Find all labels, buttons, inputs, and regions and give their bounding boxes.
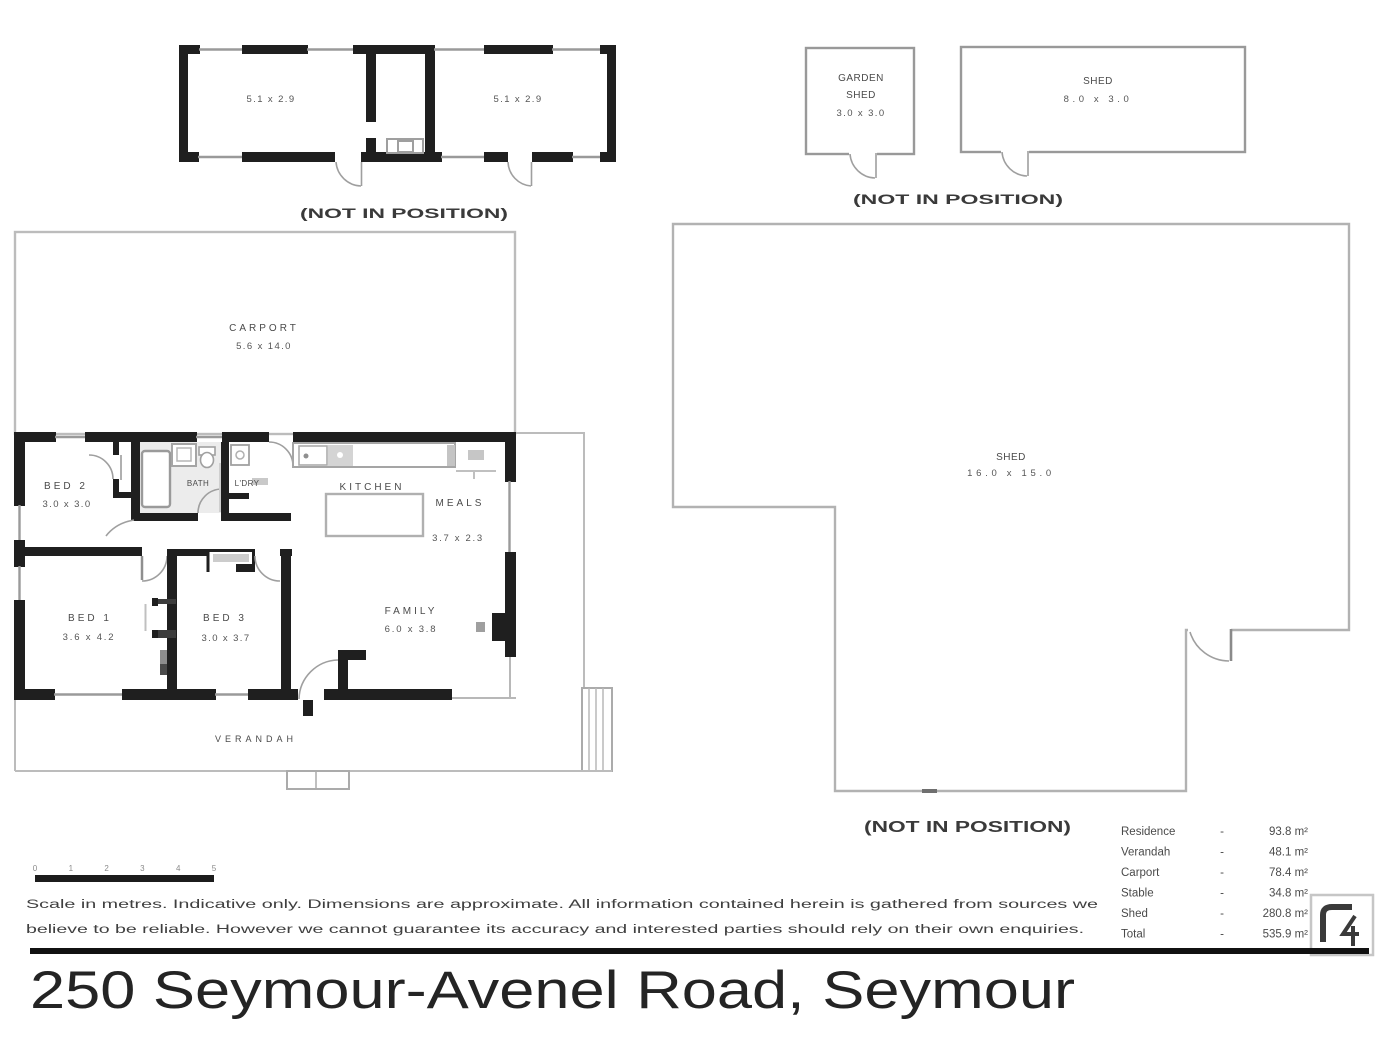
svg-text:5: 5 [212, 864, 217, 873]
svg-text:3.0 x 3.7: 3.0 x 3.7 [201, 633, 250, 644]
svg-text:-: - [1220, 867, 1224, 879]
svg-text:2: 2 [104, 864, 109, 873]
svg-text:-: - [1220, 826, 1224, 838]
svg-text:-: - [1220, 929, 1224, 941]
svg-text:250 Seymour-Avenel Road, Seymo: 250 Seymour-Avenel Road, Seymour [30, 961, 1075, 1020]
svg-text:SHED: SHED [1083, 76, 1113, 87]
svg-text:GARDEN: GARDEN [838, 73, 884, 84]
svg-text:BED 2: BED 2 [44, 481, 88, 492]
svg-text:5.1 x 2.9: 5.1 x 2.9 [493, 94, 542, 105]
svg-text:CARPORT: CARPORT [229, 323, 299, 334]
svg-text:L'DRY: L'DRY [235, 479, 260, 488]
svg-text:3.7 x 2.3: 3.7 x 2.3 [432, 533, 484, 544]
svg-text:-: - [1220, 888, 1224, 900]
svg-text:5.1 x 2.9: 5.1 x 2.9 [246, 94, 295, 105]
svg-text:-: - [1220, 908, 1224, 920]
svg-text:34.8 m²: 34.8 m² [1269, 888, 1308, 900]
svg-text:78.4 m²: 78.4 m² [1269, 867, 1308, 879]
svg-text:8.0 x 3.0: 8.0 x 3.0 [1064, 94, 1133, 105]
svg-text:BATH: BATH [187, 479, 209, 488]
svg-text:5.6 x 14.0: 5.6 x 14.0 [236, 341, 292, 352]
svg-text:3: 3 [140, 864, 145, 873]
svg-text:3.0 x 3.0: 3.0 x 3.0 [836, 108, 885, 119]
svg-text:believe to be reliable. Howev: believe to be reliable. However we canno… [26, 924, 1084, 936]
svg-text:Scale in metres. Indicative o: Scale in metres. Indicative only. Dimens… [26, 899, 1098, 911]
svg-text:4: 4 [176, 864, 181, 873]
svg-text:SHED: SHED [996, 452, 1026, 463]
svg-text:6.0 x 3.8: 6.0 x 3.8 [385, 624, 438, 635]
svg-text:Stable: Stable [1121, 888, 1154, 900]
svg-text:Verandah: Verandah [1121, 847, 1170, 859]
svg-text:BED 3: BED 3 [203, 613, 247, 624]
svg-text:(NOT IN POSITION): (NOT IN POSITION) [864, 819, 1071, 836]
svg-text:(NOT IN POSITION): (NOT IN POSITION) [300, 206, 508, 221]
svg-text:Total: Total [1121, 929, 1145, 941]
svg-text:3.0 x 3.0: 3.0 x 3.0 [42, 499, 91, 510]
svg-text:Residence: Residence [1121, 826, 1175, 838]
svg-text:3.6 x 4.2: 3.6 x 4.2 [63, 632, 116, 643]
svg-text:93.8 m²: 93.8 m² [1269, 826, 1308, 838]
svg-text:Shed: Shed [1121, 908, 1148, 920]
svg-text:FAMILY: FAMILY [385, 606, 438, 617]
svg-text:SHED: SHED [846, 90, 876, 101]
svg-text:KITCHEN: KITCHEN [340, 482, 405, 493]
svg-text:280.8 m²: 280.8 m² [1263, 908, 1309, 920]
svg-text:(NOT IN POSITION): (NOT IN POSITION) [853, 192, 1063, 207]
svg-text:48.1 m²: 48.1 m² [1269, 847, 1308, 859]
svg-text:16.0 x 15.0: 16.0 x 15.0 [967, 468, 1055, 479]
svg-text:MEALS: MEALS [436, 498, 485, 509]
svg-text:535.9 m²: 535.9 m² [1263, 929, 1309, 941]
svg-text:Carport: Carport [1121, 867, 1160, 879]
svg-text:BED 1: BED 1 [68, 613, 112, 624]
svg-text:1: 1 [69, 864, 74, 873]
svg-text:-: - [1220, 847, 1224, 859]
svg-text:VERANDAH: VERANDAH [215, 734, 297, 744]
svg-text:0: 0 [33, 864, 38, 873]
